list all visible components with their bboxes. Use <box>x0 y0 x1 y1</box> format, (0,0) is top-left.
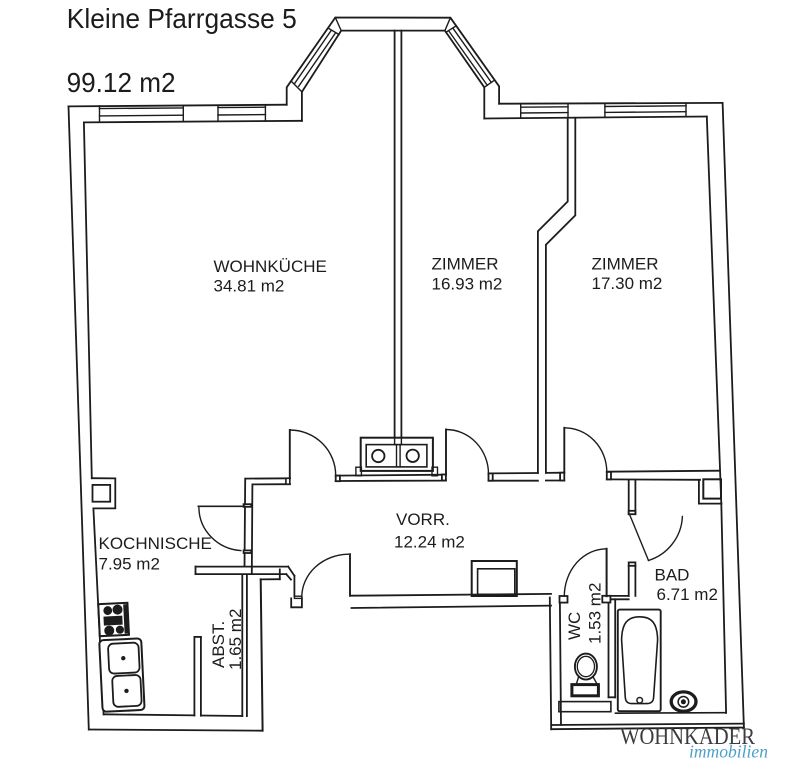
svg-text:7.95 m2: 7.95 m2 <box>99 555 160 574</box>
svg-text:34.81 m2: 34.81 m2 <box>214 276 285 295</box>
svg-text:VORR.: VORR. <box>396 510 450 529</box>
svg-text:16.93 m2: 16.93 m2 <box>432 274 503 293</box>
svg-text:6.71 m2: 6.71 m2 <box>657 585 718 604</box>
svg-text:1.65 m2: 1.65 m2 <box>226 609 245 670</box>
svg-text:immobilien: immobilien <box>689 742 768 759</box>
svg-text:ZIMMER: ZIMMER <box>432 255 499 274</box>
svg-text:99.12 m2: 99.12 m2 <box>67 67 176 98</box>
svg-text:1.53 m2: 1.53 m2 <box>586 583 605 644</box>
svg-text:KOCHNISCHE: KOCHNISCHE <box>99 534 212 553</box>
svg-text:WOHNKÜCHE: WOHNKÜCHE <box>214 257 327 276</box>
svg-text:12.24 m2: 12.24 m2 <box>394 532 465 551</box>
svg-text:Kleine Pfarrgasse 5: Kleine Pfarrgasse 5 <box>67 3 297 34</box>
svg-text:WC: WC <box>565 612 584 640</box>
svg-text:17.30 m2: 17.30 m2 <box>592 274 663 293</box>
svg-text:BAD: BAD <box>655 566 690 585</box>
svg-text:ZIMMER: ZIMMER <box>592 254 659 273</box>
